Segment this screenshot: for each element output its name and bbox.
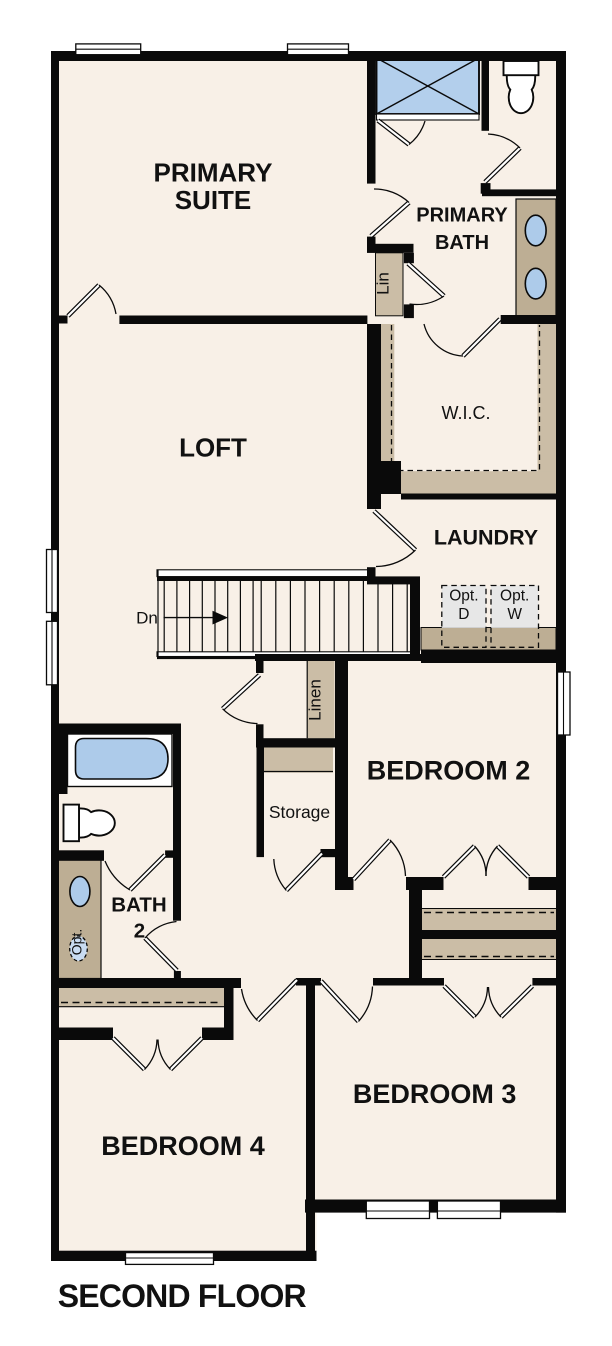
svg-text:BEDROOM 4: BEDROOM 4: [101, 1131, 265, 1161]
svg-text:BEDROOM 2: BEDROOM 2: [367, 756, 531, 786]
svg-text:LOFT: LOFT: [179, 433, 247, 463]
svg-text:2: 2: [134, 920, 145, 943]
svg-text:Linen: Linen: [306, 679, 325, 721]
svg-text:PRIMARY: PRIMARY: [416, 204, 508, 226]
svg-text:D: D: [458, 606, 469, 623]
svg-text:Opt.: Opt.: [69, 929, 85, 955]
svg-text:W: W: [507, 606, 522, 623]
svg-text:BATH: BATH: [111, 894, 166, 917]
svg-text:LAUNDRY: LAUNDRY: [434, 526, 538, 550]
svg-text:SUITE: SUITE: [175, 185, 252, 215]
svg-text:SECOND FLOOR: SECOND FLOOR: [58, 1278, 307, 1314]
svg-text:Dn: Dn: [136, 609, 158, 628]
svg-text:W.I.C.: W.I.C.: [442, 403, 491, 423]
svg-text:Lin: Lin: [374, 272, 393, 295]
svg-text:Opt.: Opt.: [500, 588, 529, 605]
svg-text:BEDROOM 3: BEDROOM 3: [353, 1079, 517, 1109]
svg-text:Storage: Storage: [269, 802, 330, 822]
svg-text:BATH: BATH: [435, 232, 489, 254]
svg-text:PRIMARY: PRIMARY: [154, 158, 273, 188]
svg-text:Opt.: Opt.: [449, 588, 478, 605]
